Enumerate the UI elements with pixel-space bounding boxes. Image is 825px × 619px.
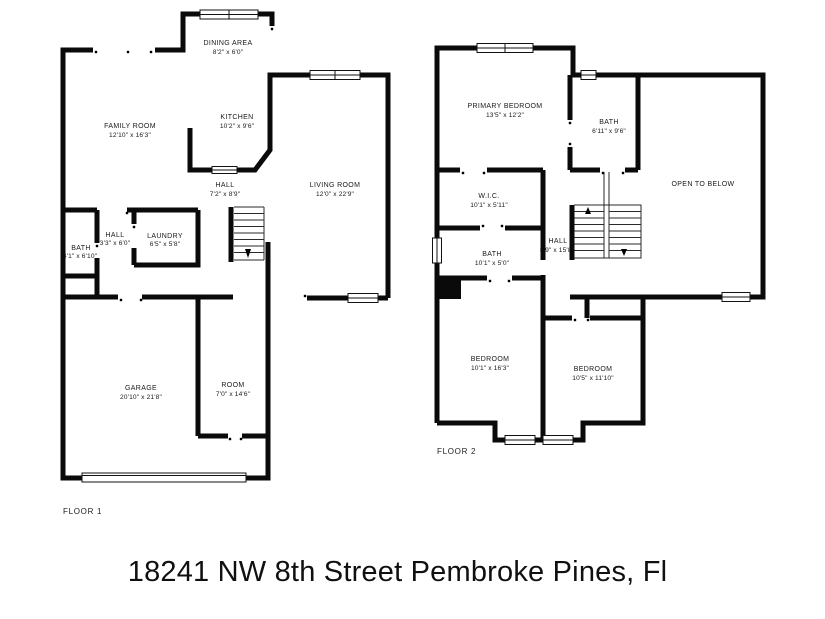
room-label-living-room: LIVING ROOM xyxy=(310,182,361,189)
room-label-garage: GARAGE xyxy=(125,385,157,392)
chimney-block xyxy=(435,280,461,299)
room-dims-room: 7'0" x 14'6" xyxy=(216,391,251,398)
room-label-room: ROOM xyxy=(221,382,244,389)
room-dims-bedroom-left: 10'1" x 16'3" xyxy=(471,365,510,372)
floor2-room-labels: PRIMARY BEDROOM 13'5" x 12'2" BATH 6'11"… xyxy=(467,103,734,382)
room-dims-primary-bedroom: 13'5" x 12'2" xyxy=(486,112,525,119)
room-dims-family-room: 12'10" x 16'3" xyxy=(109,132,151,139)
floor1-stairs xyxy=(234,207,264,260)
room-dims-dining-area: 8'2" x 6'0" xyxy=(213,49,244,56)
room-dims-living-room: 12'0" x 22'9" xyxy=(316,191,355,198)
stairs-down-arrow-f2 xyxy=(621,249,627,256)
room-dims-wic: 10'1" x 5'11" xyxy=(470,202,508,209)
floor2-caption: FLOOR 2 xyxy=(437,447,476,456)
room-dims-bedroom-right: 10'5" x 11'10" xyxy=(572,375,614,382)
room-label-bath-mid: BATH xyxy=(482,251,502,258)
room-dims-bath-upper: 6'11" x 9'6" xyxy=(592,128,626,135)
room-label-bath-f1: BATH xyxy=(71,245,91,252)
floor1-caption: FLOOR 1 xyxy=(63,507,102,516)
room-label-hall2-f1: HALL xyxy=(106,232,125,239)
address-title: 18241 NW 8th Street Pembroke Pines, Fl xyxy=(0,556,795,589)
room-label-family-room: FAMILY ROOM xyxy=(104,123,156,130)
room-label-wic: W.I.C. xyxy=(478,193,499,200)
room-label-dining-area: DINING AREA xyxy=(204,40,253,47)
room-label-bedroom-left: BEDROOM xyxy=(471,356,510,363)
garage-door xyxy=(82,473,246,482)
room-label-bath-upper: BATH xyxy=(599,119,619,126)
room-dims-kitchen: 10'2" x 9'6" xyxy=(220,123,255,130)
floor1-room-labels: DINING AREA 8'2" x 6'0" KITCHEN 10'2" x … xyxy=(63,40,360,401)
room-label-kitchen: KITCHEN xyxy=(220,114,253,121)
room-label-hall-f2: HALL xyxy=(549,238,568,245)
room-dims-bath-mid: 10'1" x 5'0" xyxy=(475,260,510,267)
stairs-up-arrow-f2 xyxy=(585,207,591,214)
room-dims-bath-f1: 4'1" x 6'10" xyxy=(63,253,98,260)
floor1-plan: DINING AREA 8'2" x 6'0" KITCHEN 10'2" x … xyxy=(63,10,388,516)
stairs-down-arrow-f1 xyxy=(245,249,251,258)
floorplan-drawing: DINING AREA 8'2" x 6'0" KITCHEN 10'2" x … xyxy=(0,0,825,619)
floor2-plan: PRIMARY BEDROOM 13'5" x 12'2" BATH 6'11"… xyxy=(433,44,764,457)
floor2-stairs xyxy=(574,172,641,258)
room-label-bedroom-right: BEDROOM xyxy=(574,366,613,373)
room-label-hall-f1: HALL xyxy=(216,182,235,189)
room-dims-hall2-f1: 3'3" x 6'0" xyxy=(100,240,131,247)
room-dims-hall-f1: 7'2" x 8'9" xyxy=(210,191,241,198)
room-label-open-to-below: OPEN TO BELOW xyxy=(671,181,734,188)
room-label-laundry: LAUNDRY xyxy=(147,233,183,240)
room-dims-garage: 20'10" x 21'8" xyxy=(120,394,162,401)
floorplan-page: { "address": "18241 NW 8th Street Pembro… xyxy=(0,0,825,619)
room-label-primary-bedroom: PRIMARY BEDROOM xyxy=(467,103,542,110)
room-dims-laundry: 6'5" x 5'8" xyxy=(150,241,181,248)
